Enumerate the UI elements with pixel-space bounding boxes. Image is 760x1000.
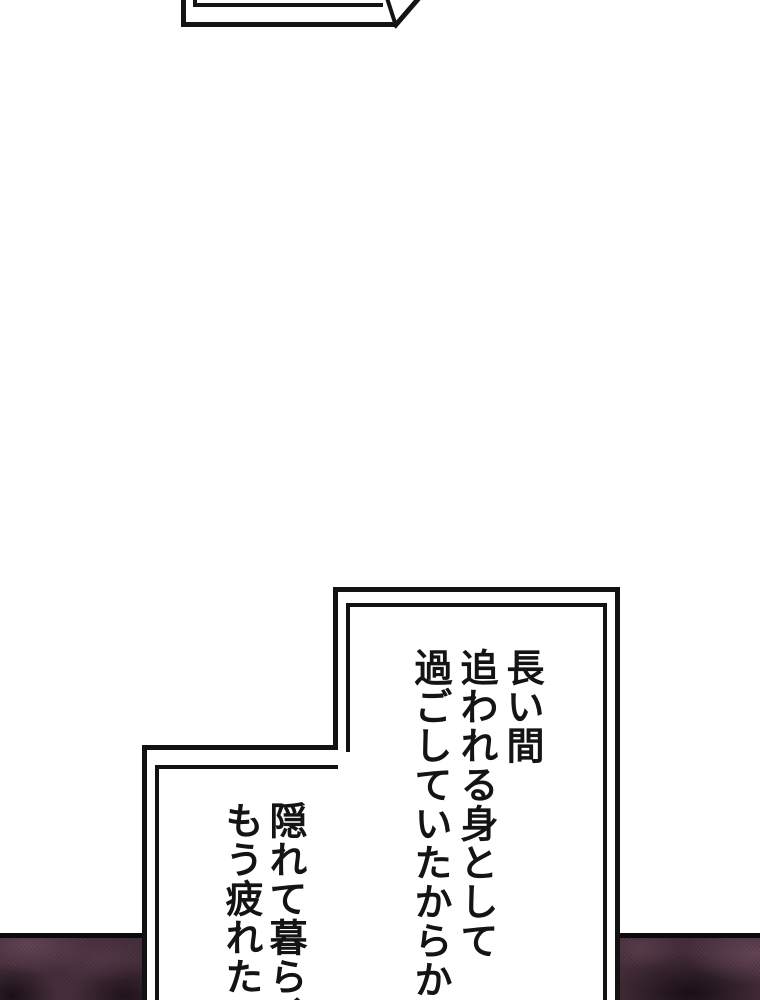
speech-line-1: 長い間 (499, 648, 545, 1000)
speech-line-1: 隠れて暮ら、 (263, 801, 307, 1000)
speech-text-secondary: 隠れて暮ら、 もう疲れた (219, 801, 307, 1000)
speech-line-3: 過ごしていたからか (407, 648, 453, 1000)
speech-line-2: 追われる身として (453, 648, 499, 1000)
top-fragment-tail-outer-edge (394, 0, 419, 27)
speech-line-2: もう疲れた (219, 801, 263, 1000)
top-fragment-inner-border (195, 0, 383, 5)
manga-page: 長い間 追われる身として 過ごしていたからか 隠れて暮ら、 もう疲れた (0, 0, 760, 1000)
speech-text-main: 長い間 追われる身として 過ごしていたからか (407, 648, 545, 1000)
speech-box-top-fragment (0, 0, 440, 30)
